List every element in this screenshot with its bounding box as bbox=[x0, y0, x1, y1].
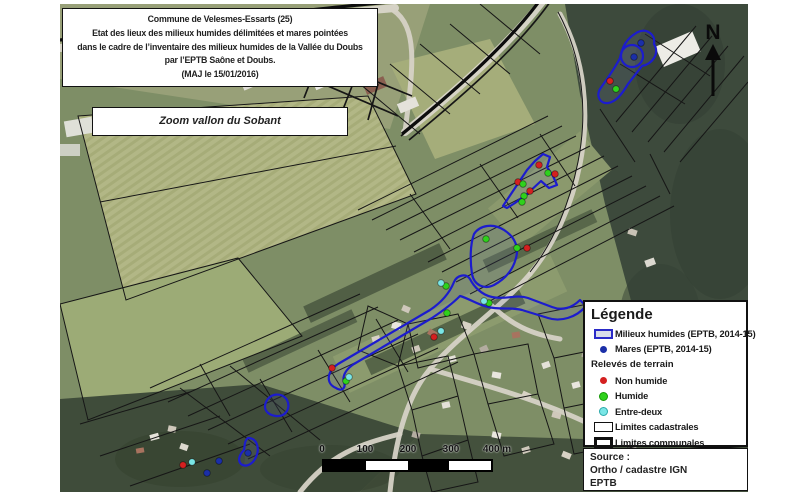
source-line: Ortho / cadastre IGN bbox=[590, 464, 741, 477]
humide-point bbox=[483, 236, 490, 243]
humide-point bbox=[545, 170, 552, 177]
non-humide-point bbox=[552, 171, 559, 178]
legend-item-milieux-humides: Milieux humides (EPTB, 2014-15) bbox=[591, 326, 740, 342]
entre-deux-point bbox=[438, 280, 445, 287]
non-humide-point bbox=[536, 162, 543, 169]
scale-segment bbox=[366, 461, 408, 470]
mare-point bbox=[631, 54, 638, 61]
source-line: Source : bbox=[590, 451, 741, 464]
scale-bar bbox=[322, 459, 493, 472]
legend-item-entre-deux: Entre-deux bbox=[591, 404, 740, 420]
map-export-page: Commune de Velesmes-Essarts (25) Etat de… bbox=[0, 0, 800, 500]
legend-item-mares: Mares (EPTB, 2014-15) bbox=[591, 342, 740, 358]
humide-dot-icon bbox=[599, 392, 608, 401]
north-label: N bbox=[698, 22, 728, 44]
legend-item-non-humide: Non humide bbox=[591, 373, 740, 389]
scale-tick: 0 bbox=[319, 444, 325, 455]
legend-item-label: Milieux humides (EPTB, 2014-15) bbox=[615, 329, 756, 339]
mare-point bbox=[204, 470, 211, 477]
wetland-small-blob bbox=[265, 395, 288, 417]
legend-item-label: Limites cadastrales bbox=[615, 422, 698, 432]
legend-item-humide: Humide bbox=[591, 389, 740, 405]
mare-point bbox=[245, 450, 252, 457]
scale-tick: 100 bbox=[357, 444, 374, 455]
scale-segment bbox=[408, 461, 450, 470]
title-line: (MAJ le 15/01/2016) bbox=[63, 68, 377, 82]
humide-point bbox=[519, 199, 526, 206]
legend-title: Légende bbox=[591, 306, 740, 323]
non-humide-dot-icon bbox=[600, 377, 607, 384]
non-humide-point bbox=[607, 78, 614, 85]
humide-point bbox=[444, 310, 451, 317]
title-line: par l’EPTB Saône et Doubs. bbox=[63, 54, 377, 68]
legend-item-label: Mares (EPTB, 2014-15) bbox=[615, 344, 712, 354]
non-humide-point bbox=[527, 188, 534, 195]
legend-item-limites-cadastrales: Limites cadastrales bbox=[591, 420, 740, 436]
wetland-swatch-icon bbox=[594, 329, 613, 339]
entre-deux-point bbox=[481, 298, 488, 305]
north-arrow: N bbox=[698, 22, 728, 101]
scale-segment bbox=[449, 461, 491, 470]
title-line: Commune de Velesmes-Essarts (25) bbox=[63, 13, 377, 27]
legend-subheading: Relevés de terrain bbox=[591, 357, 740, 373]
scale-tick: 200 bbox=[400, 444, 417, 455]
scale-segment bbox=[324, 461, 366, 470]
entre-deux-point bbox=[346, 374, 353, 381]
source-line: EPTB bbox=[590, 477, 741, 490]
source-box: Source : Ortho / cadastre IGN EPTB bbox=[583, 448, 748, 491]
legend-item-label: Non humide bbox=[615, 376, 667, 386]
legend-item-label: Humide bbox=[615, 391, 648, 401]
humide-point bbox=[521, 193, 528, 200]
title-line: dans le cadre de l’inventaire des milieu… bbox=[63, 41, 377, 55]
humide-point bbox=[613, 86, 620, 93]
title-line: Etat des lieux des milieux humides délim… bbox=[63, 27, 377, 41]
non-humide-point bbox=[431, 334, 438, 341]
map-title-box: Commune de Velesmes-Essarts (25) Etat de… bbox=[62, 8, 378, 87]
legend-item-label: Entre-deux bbox=[615, 407, 662, 417]
entre-deux-point bbox=[189, 459, 196, 466]
mare-dot-icon bbox=[600, 346, 607, 353]
scale-tick: 400 m bbox=[483, 444, 511, 455]
humide-point bbox=[514, 245, 521, 252]
entre-deux-dot-icon bbox=[599, 407, 608, 416]
humide-point bbox=[520, 181, 527, 188]
entre-deux-point bbox=[438, 328, 445, 335]
cadastral-swatch-icon bbox=[594, 422, 613, 432]
mare-point bbox=[638, 40, 645, 47]
zoom-label-box: Zoom vallon du Sobant bbox=[92, 107, 348, 136]
legend-item-label: Limites communales bbox=[615, 438, 704, 448]
scale-tick: 300 bbox=[443, 444, 460, 455]
north-arrow-icon bbox=[698, 44, 728, 96]
mare-point bbox=[216, 458, 223, 465]
communal-swatch-icon bbox=[594, 437, 613, 448]
non-humide-point bbox=[524, 245, 531, 252]
non-humide-point bbox=[180, 462, 187, 469]
legend: Légende Milieux humides (EPTB, 2014-15) … bbox=[583, 300, 748, 447]
zoom-label: Zoom vallon du Sobant bbox=[159, 115, 281, 127]
non-humide-point bbox=[329, 365, 336, 372]
